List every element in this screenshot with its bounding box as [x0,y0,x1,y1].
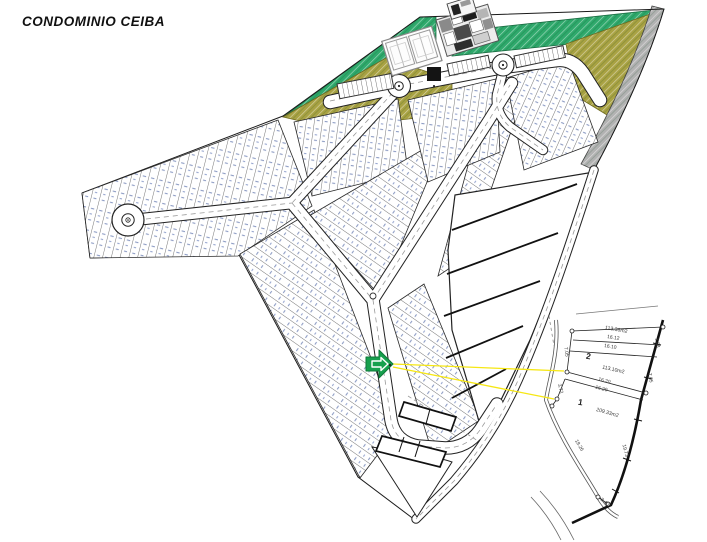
inset-dim: 19.73 [621,444,630,458]
island-tip-marker [370,293,376,299]
inset-lot1-number: 1 [577,397,584,408]
roundabout-right [492,54,514,76]
inset-lot2-area: 113.10m2 [601,365,625,376]
plan-page: CONDOMINIO CEIBA [0,0,707,542]
cul-de-sac [112,204,144,236]
inset-dim: 16.29 [594,385,608,394]
detail-inset: 113.36m2 16.12 16.10 2 113.10m2 7.05 16.… [531,306,665,540]
inset-dim: 16.10 [604,343,618,351]
inset-dim: 7.05 [562,347,569,358]
inset-dim: 16.12 [607,334,621,342]
inset-dim: 19.26 [573,439,585,453]
inset-lot1-area: 209.33m2 [595,407,619,419]
inset-dim: 3.72 [556,383,564,394]
site-plan-svg: 113.36m2 16.12 16.10 2 113.10m2 7.05 16.… [0,0,707,542]
inset-dim: 16.20 [597,377,611,386]
inset-lot2-number: 2 [585,351,592,362]
